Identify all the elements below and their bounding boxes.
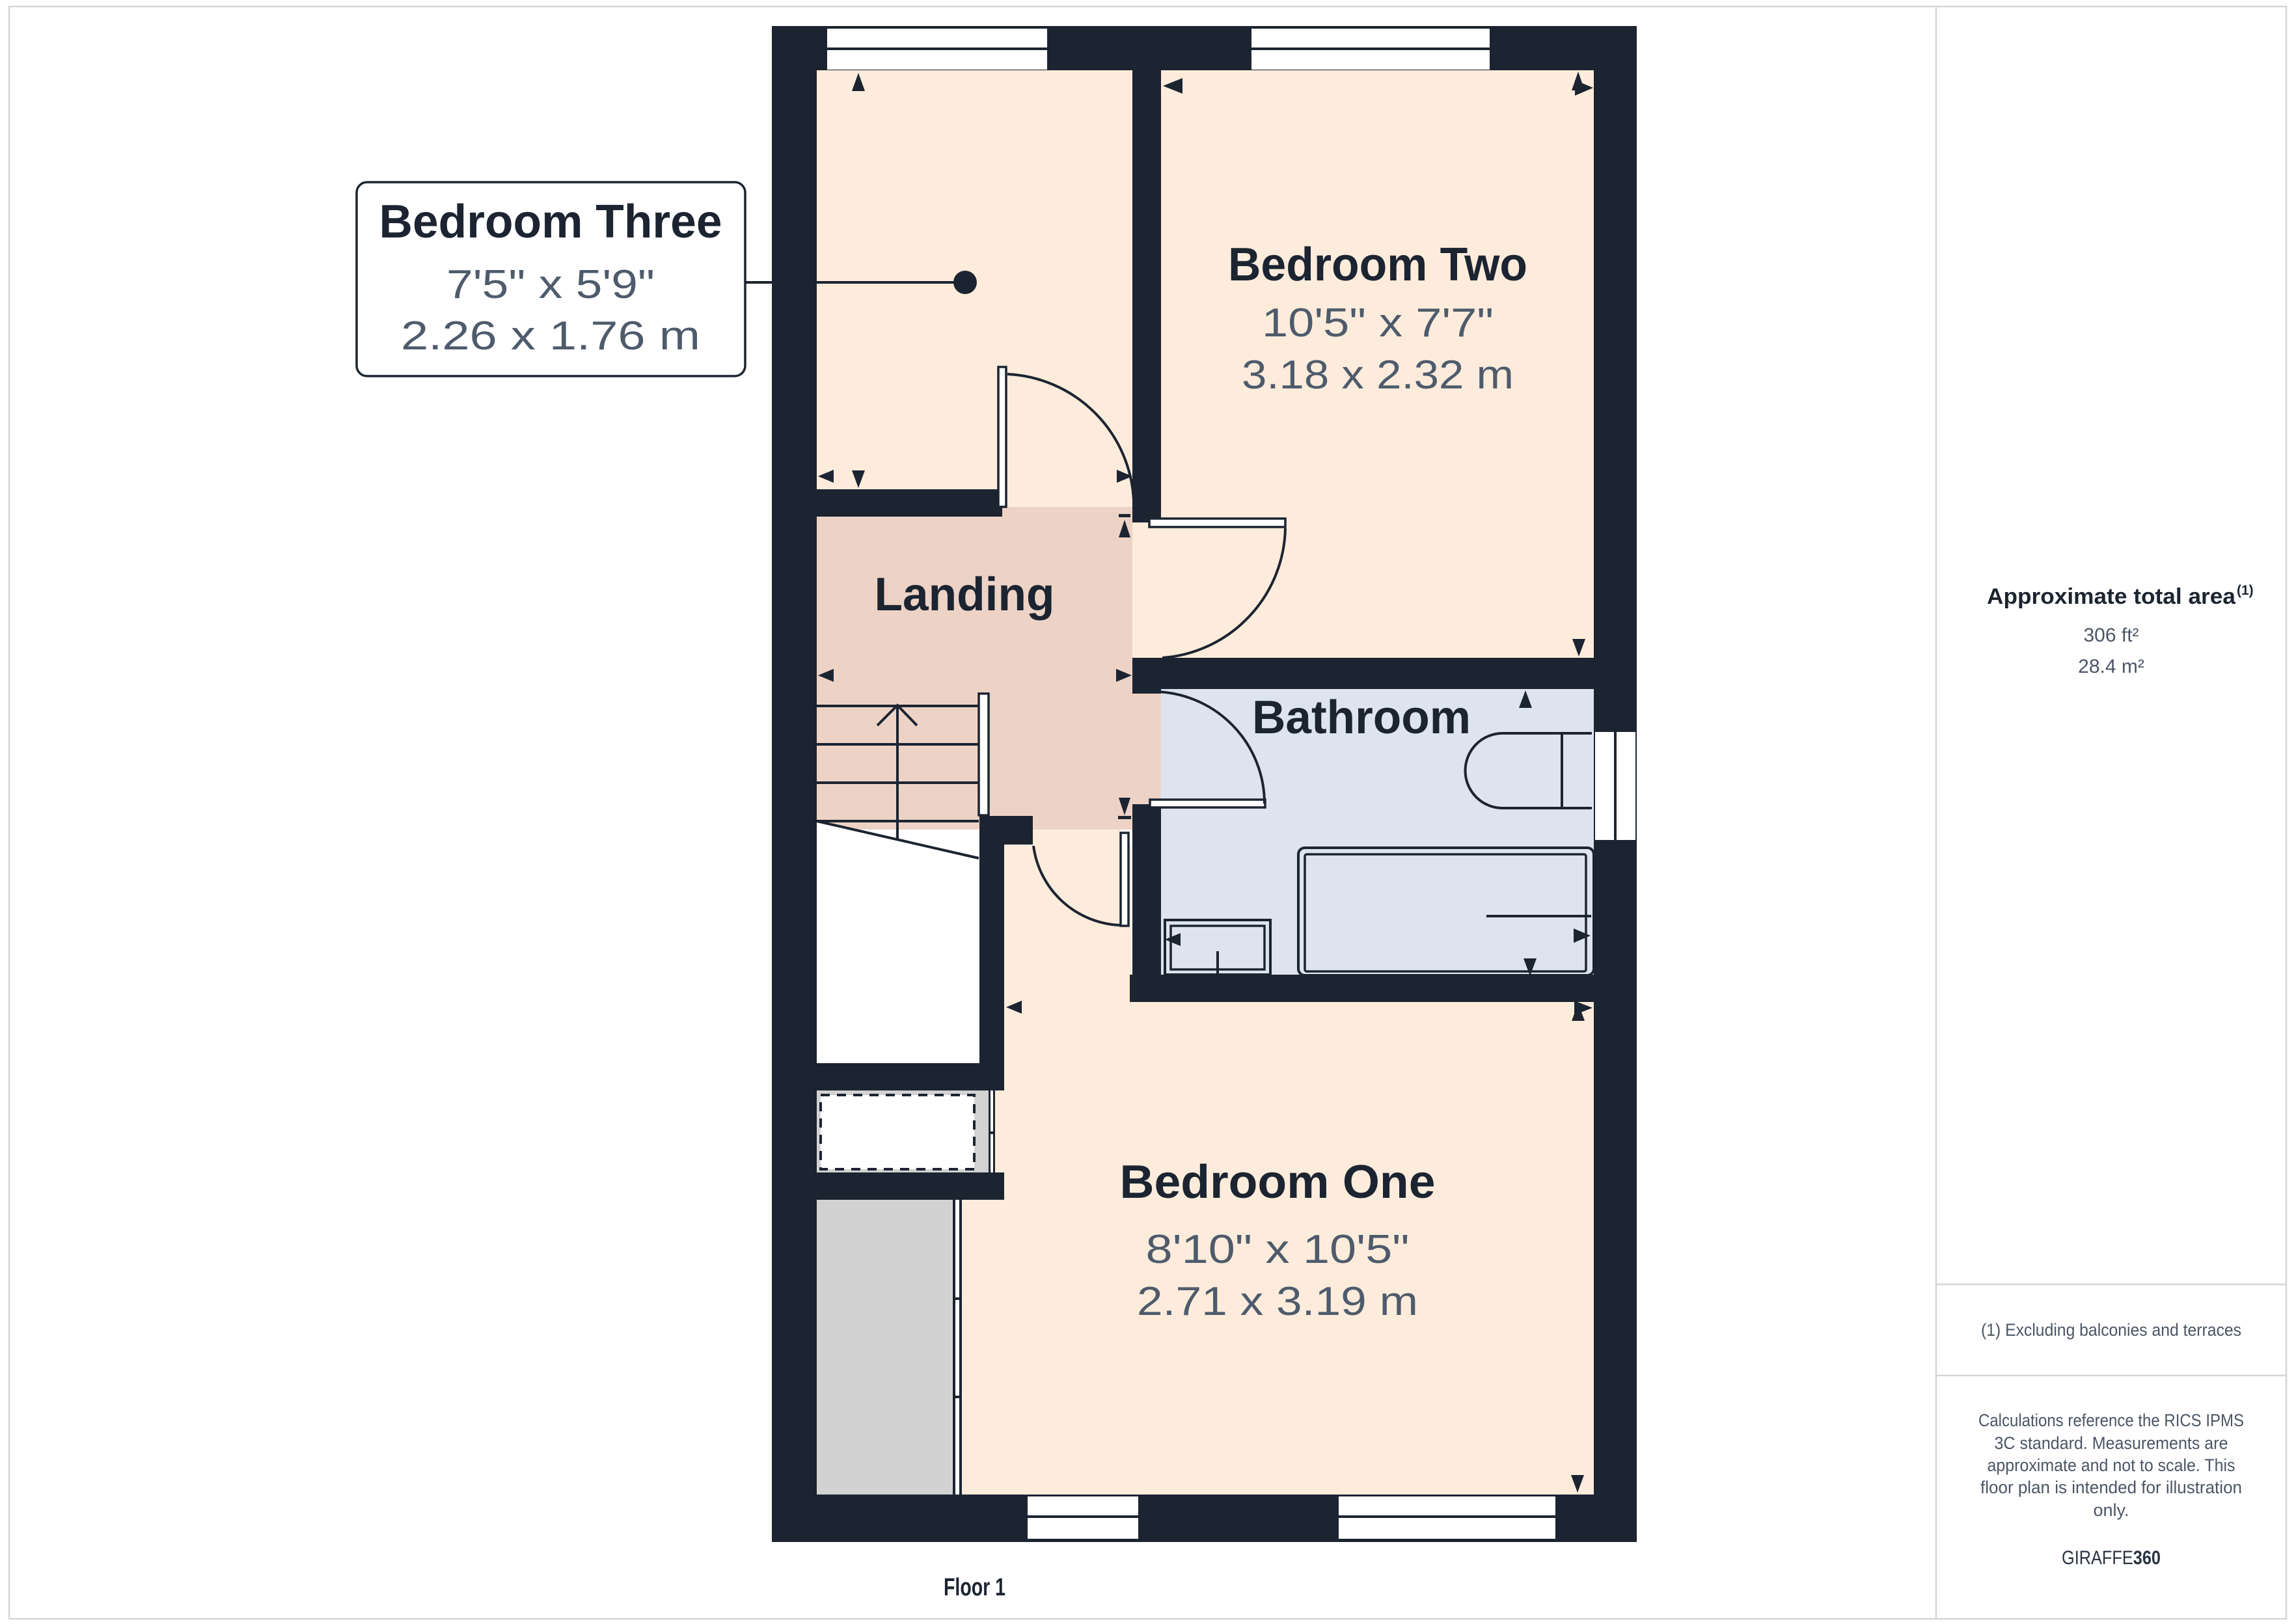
- svg-text:(1): (1): [2237, 583, 2254, 598]
- svg-text:Bedroom Two: Bedroom Two: [1228, 239, 1527, 291]
- svg-text:approximate and not to scale.: approximate and not to scale. This: [1988, 1455, 2235, 1475]
- svg-text:Calculations reference the RIC: Calculations reference the RICS IPMS: [1978, 1411, 2244, 1430]
- svg-text:(1) Excluding balconies and te: (1) Excluding balconies and terraces: [1981, 1320, 2241, 1340]
- svg-text:Approximate total area: Approximate total area: [1987, 584, 2236, 609]
- svg-text:Landing: Landing: [875, 569, 1055, 621]
- svg-text:2.71 x 3.19 m: 2.71 x 3.19 m: [1137, 1279, 1418, 1324]
- svg-text:2.26 x 1.76 m: 2.26 x 1.76 m: [401, 314, 700, 359]
- svg-text:floor plan is intended for ill: floor plan is intended for illustration: [1980, 1478, 2242, 1497]
- svg-text:8'10" x 10'5": 8'10" x 10'5": [1146, 1227, 1410, 1272]
- svg-text:3.18 x 2.32 m: 3.18 x 2.32 m: [1242, 353, 1514, 398]
- svg-text:GIRAFFE360: GIRAFFE360: [2062, 1547, 2161, 1569]
- svg-text:only.: only.: [2093, 1500, 2129, 1520]
- svg-text:3C standard. Measurements are: 3C standard. Measurements are: [1995, 1433, 2228, 1453]
- svg-text:10'5" x 7'7": 10'5" x 7'7": [1262, 301, 1494, 345]
- svg-text:28.4 m²: 28.4 m²: [2078, 656, 2144, 677]
- svg-text:Bedroom One: Bedroom One: [1120, 1156, 1436, 1208]
- svg-text:Floor 1: Floor 1: [944, 1574, 1005, 1601]
- svg-text:306 ft²: 306 ft²: [2083, 625, 2139, 646]
- svg-text:7'5" x 5'9": 7'5" x 5'9": [446, 262, 655, 307]
- svg-text:Bedroom Three: Bedroom Three: [379, 196, 722, 248]
- svg-text:Bathroom: Bathroom: [1252, 692, 1471, 744]
